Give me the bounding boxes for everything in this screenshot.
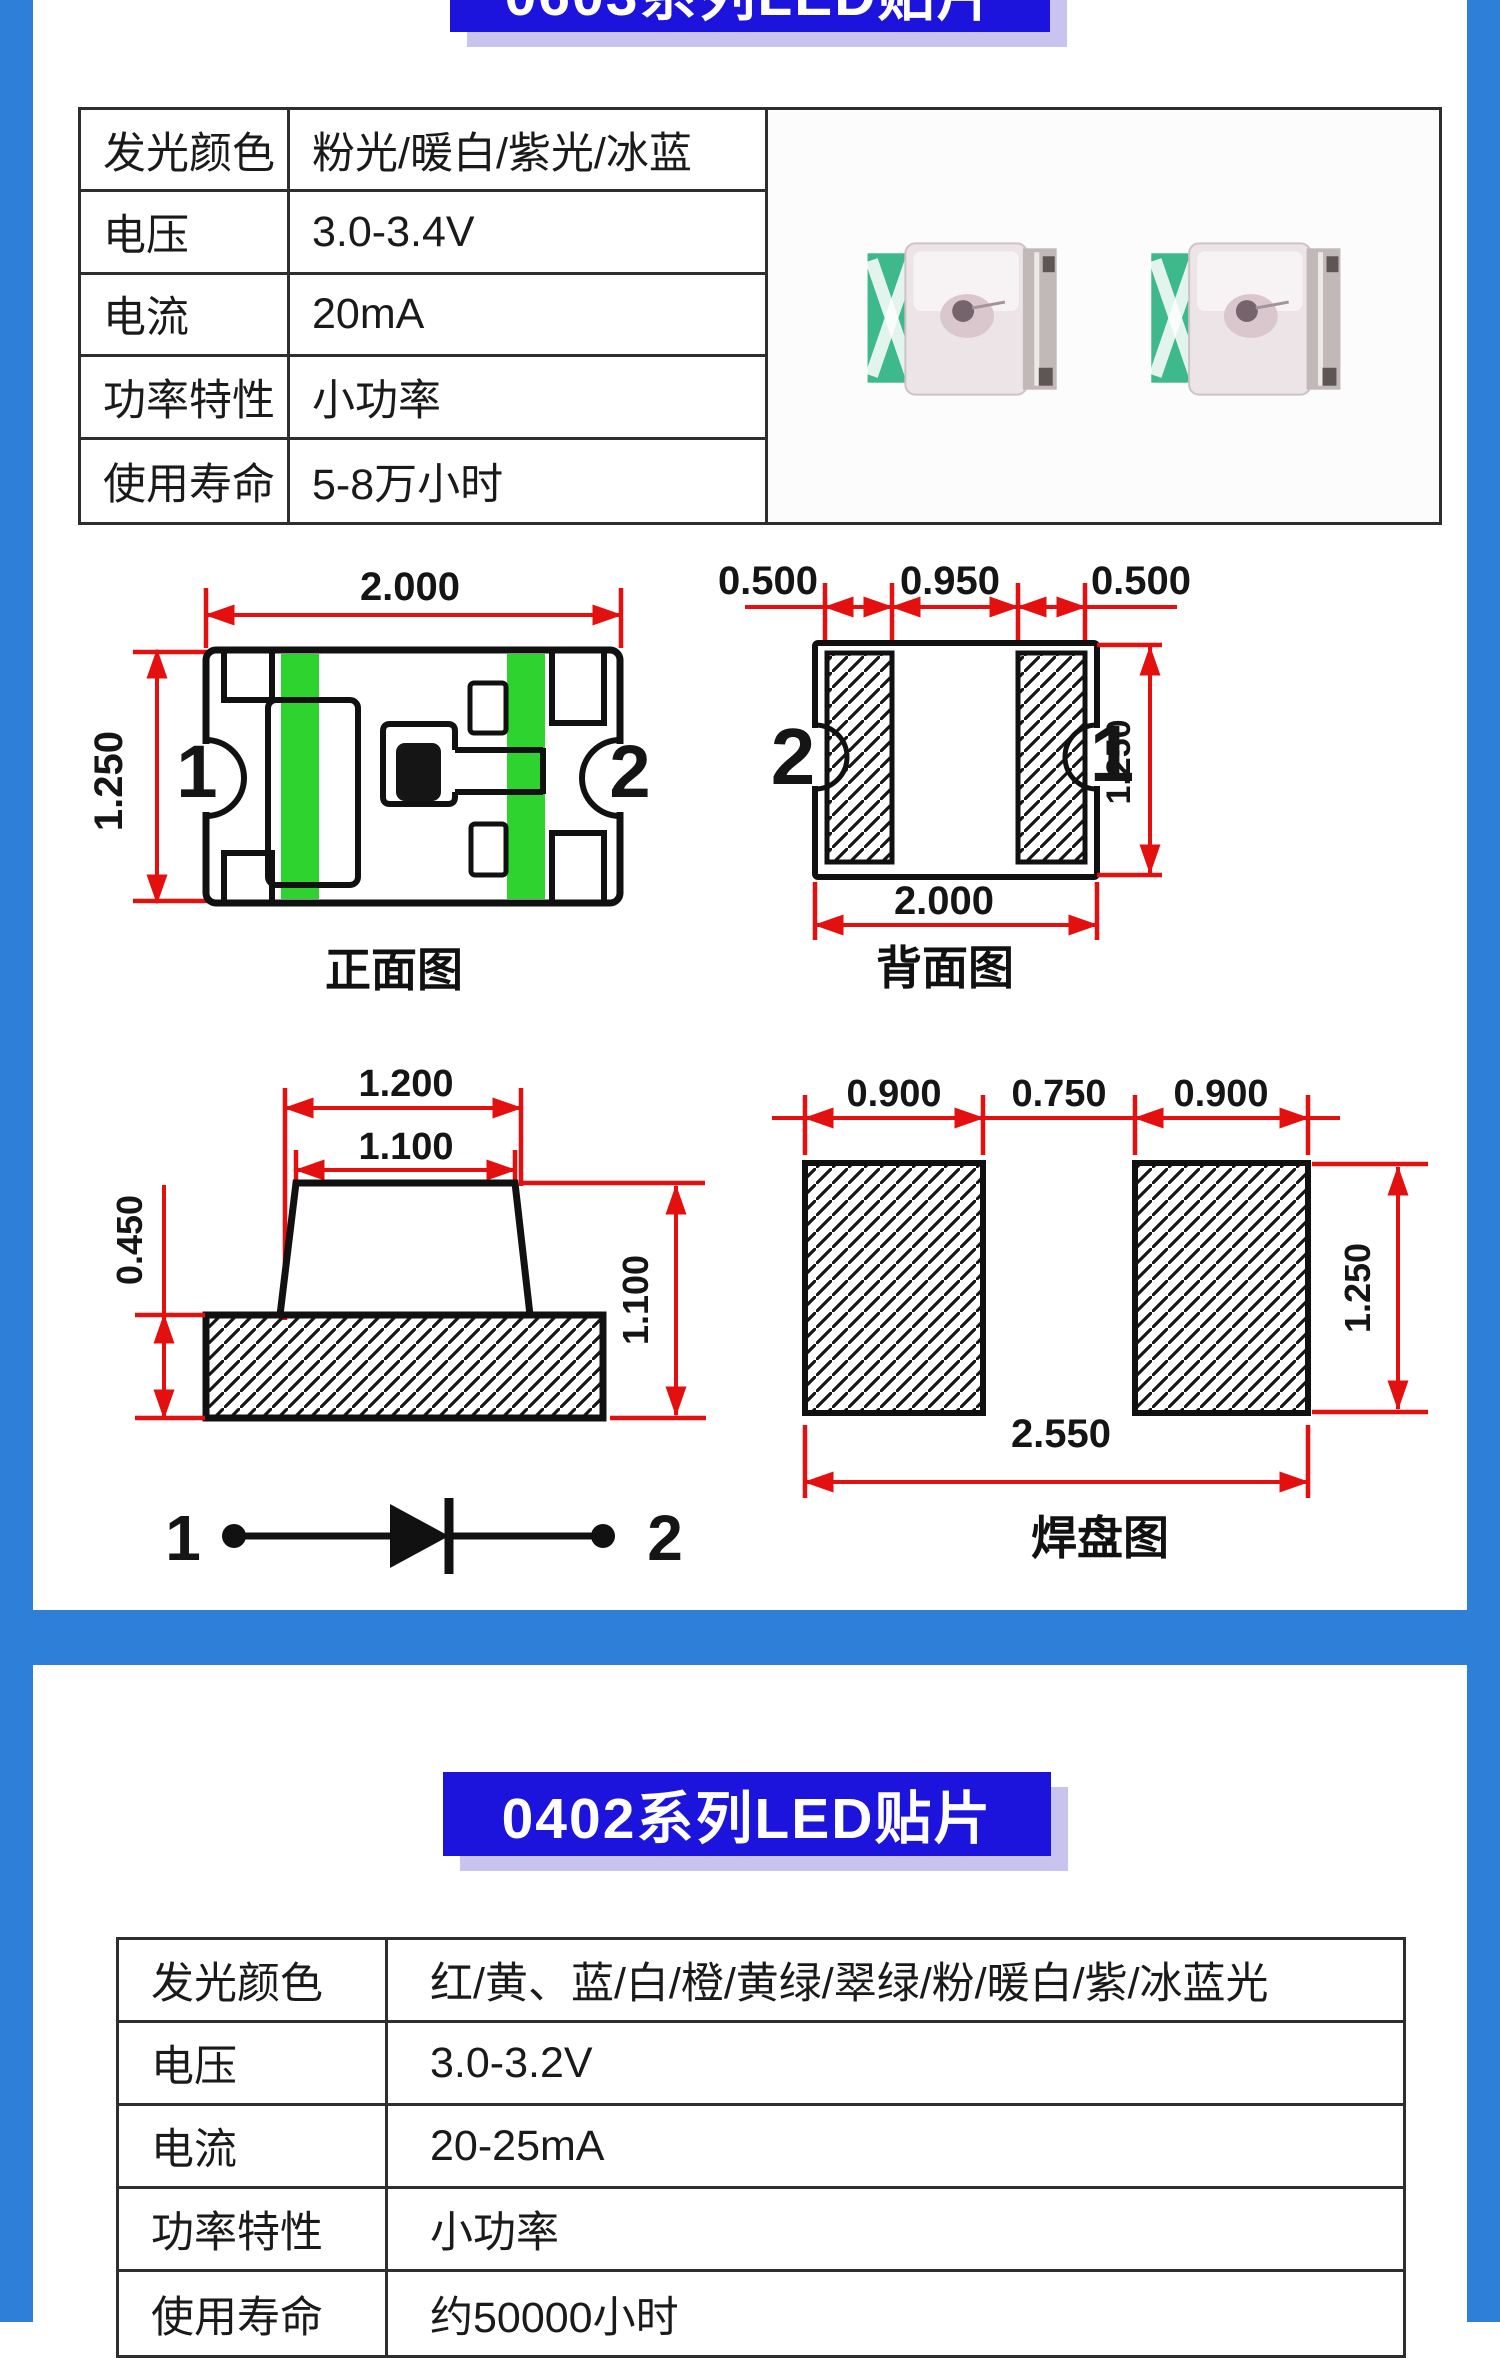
front-pin2-label: 2: [609, 730, 650, 813]
spec-row-label: 电流: [81, 275, 290, 357]
diode-pin1-label: 1: [165, 1502, 201, 1574]
back-pad-dim-right: 0.500: [1091, 559, 1191, 603]
side-base-height-dim: 0.450: [109, 1195, 150, 1285]
spec-row-label: 电压: [81, 192, 290, 274]
section2-title: 0402系列LED贴片: [502, 1773, 993, 1855]
front-pin1-label: 1: [176, 730, 217, 813]
front-view-label: 正面图: [325, 944, 463, 996]
section1-title: 0603系列LED贴片: [505, 0, 996, 32]
spec-row-value: 3.0-3.4V: [290, 192, 768, 274]
pad-height-dim: 1.250: [1337, 1243, 1378, 1333]
back-height-dim: 1.250: [1100, 719, 1138, 804]
solder-pad-left: [805, 1163, 983, 1413]
side-base: [206, 1315, 603, 1418]
back-width-dim: 2.000: [894, 879, 994, 923]
front-green-stripe-left: [281, 654, 319, 899]
front-view-diagram: 2.000 1.250 1 2 正面图: [55, 550, 745, 1010]
back-pad-dim-left: 0.500: [718, 559, 818, 603]
diode-pin2-label: 2: [647, 1502, 683, 1574]
led-chip: [868, 243, 1057, 394]
solder-pad-right: [1135, 1163, 1308, 1413]
back-pad-left: [827, 653, 892, 862]
pad-layout-label: 焊盘图: [1031, 1512, 1169, 1564]
front-green-stripe-right: [507, 654, 545, 899]
back-view-label: 背面图: [876, 942, 1014, 994]
spec-row-label: 发光颜色: [81, 110, 290, 192]
spec-row-label: 电流: [119, 2106, 388, 2189]
back-pad-right: [1018, 653, 1085, 862]
product-detail-page: { "colors":{ "accent_blue":"#2e7fd8","ba…: [0, 0, 1500, 2322]
side-lens: [280, 1183, 530, 1315]
spec-row-value: 约50000小时: [388, 2272, 1403, 2355]
spec-table-0402: 发光颜色 红/黄、蓝/白/橙/黄绿/翠绿/粉/暖白/紫/冰蓝光 电压 3.0-3…: [116, 1937, 1406, 2358]
spec-row-value: 红/黄、蓝/白/橙/黄绿/翠绿/粉/暖白/紫/冰蓝光: [388, 1940, 1403, 2023]
led-photo-cell: [768, 110, 1439, 522]
front-width-dim: 2.000: [360, 565, 460, 609]
pad-total-width-dim: 2.550: [1011, 1412, 1111, 1456]
spec-row-label: 使用寿命: [81, 440, 290, 522]
back-view-diagram: 0.500 0.950 0.500 2 1 1.250 2.000 背面图: [705, 550, 1435, 995]
page-left-border: [0, 0, 33, 2322]
spec-row-value: 小功率: [290, 357, 768, 439]
front-height-dim: 1.250: [87, 731, 131, 831]
spec-row-label: 发光颜色: [119, 1940, 388, 2023]
pad-dim-right: 0.900: [1173, 1073, 1268, 1115]
section-divider: [0, 1610, 1500, 1665]
spec-row-value: 20mA: [290, 275, 768, 357]
spec-row-value: 20-25mA: [388, 2106, 1403, 2189]
side-outer-width-dim: 1.200: [358, 1063, 453, 1105]
side-lens-width-dim: 1.100: [358, 1126, 453, 1168]
spec-row-value: 3.0-3.2V: [388, 2023, 1403, 2106]
diode-anode-triangle: [390, 1504, 449, 1568]
pad-layout-diagram: 0.900 0.750 0.900 1.250 2.550 焊盘图: [740, 1060, 1440, 1570]
pad-gap-dim: 0.750: [1011, 1073, 1106, 1115]
page-right-border: [1467, 0, 1500, 2322]
led-product-photo: [768, 110, 1439, 522]
spec-row-value: 小功率: [388, 2189, 1403, 2272]
led-chip: [1151, 243, 1340, 394]
pad-dim-left: 0.900: [846, 1073, 941, 1115]
front-die: [396, 743, 441, 801]
section2-title-banner: 0402系列LED贴片: [443, 1772, 1051, 1856]
side-view-diagram: 1.200 1.100 0.450 1.100 1 2: [55, 1050, 755, 1590]
spec-row-label: 功率特性: [81, 357, 290, 439]
diode-symbol: 1 2: [165, 1498, 683, 1574]
spec-row-value: 粉光/暖白/紫光/冰蓝: [290, 110, 768, 192]
spec-row-label: 电压: [119, 2023, 388, 2106]
section1-title-banner: 0603系列LED贴片: [450, 0, 1050, 32]
spec-row-value: 5-8万小时: [290, 440, 768, 522]
back-gap-dim: 0.950: [900, 559, 1000, 603]
spec-row-label: 功率特性: [119, 2189, 388, 2272]
spec-row-label: 使用寿命: [119, 2272, 388, 2355]
side-total-height-dim: 1.100: [615, 1255, 656, 1345]
spec-table-0603: 发光颜色 粉光/暖白/紫光/冰蓝 电压 3.0-3.4V 电流 20mA 功率特…: [78, 107, 1442, 525]
back-pin2-label: 2: [771, 712, 816, 801]
